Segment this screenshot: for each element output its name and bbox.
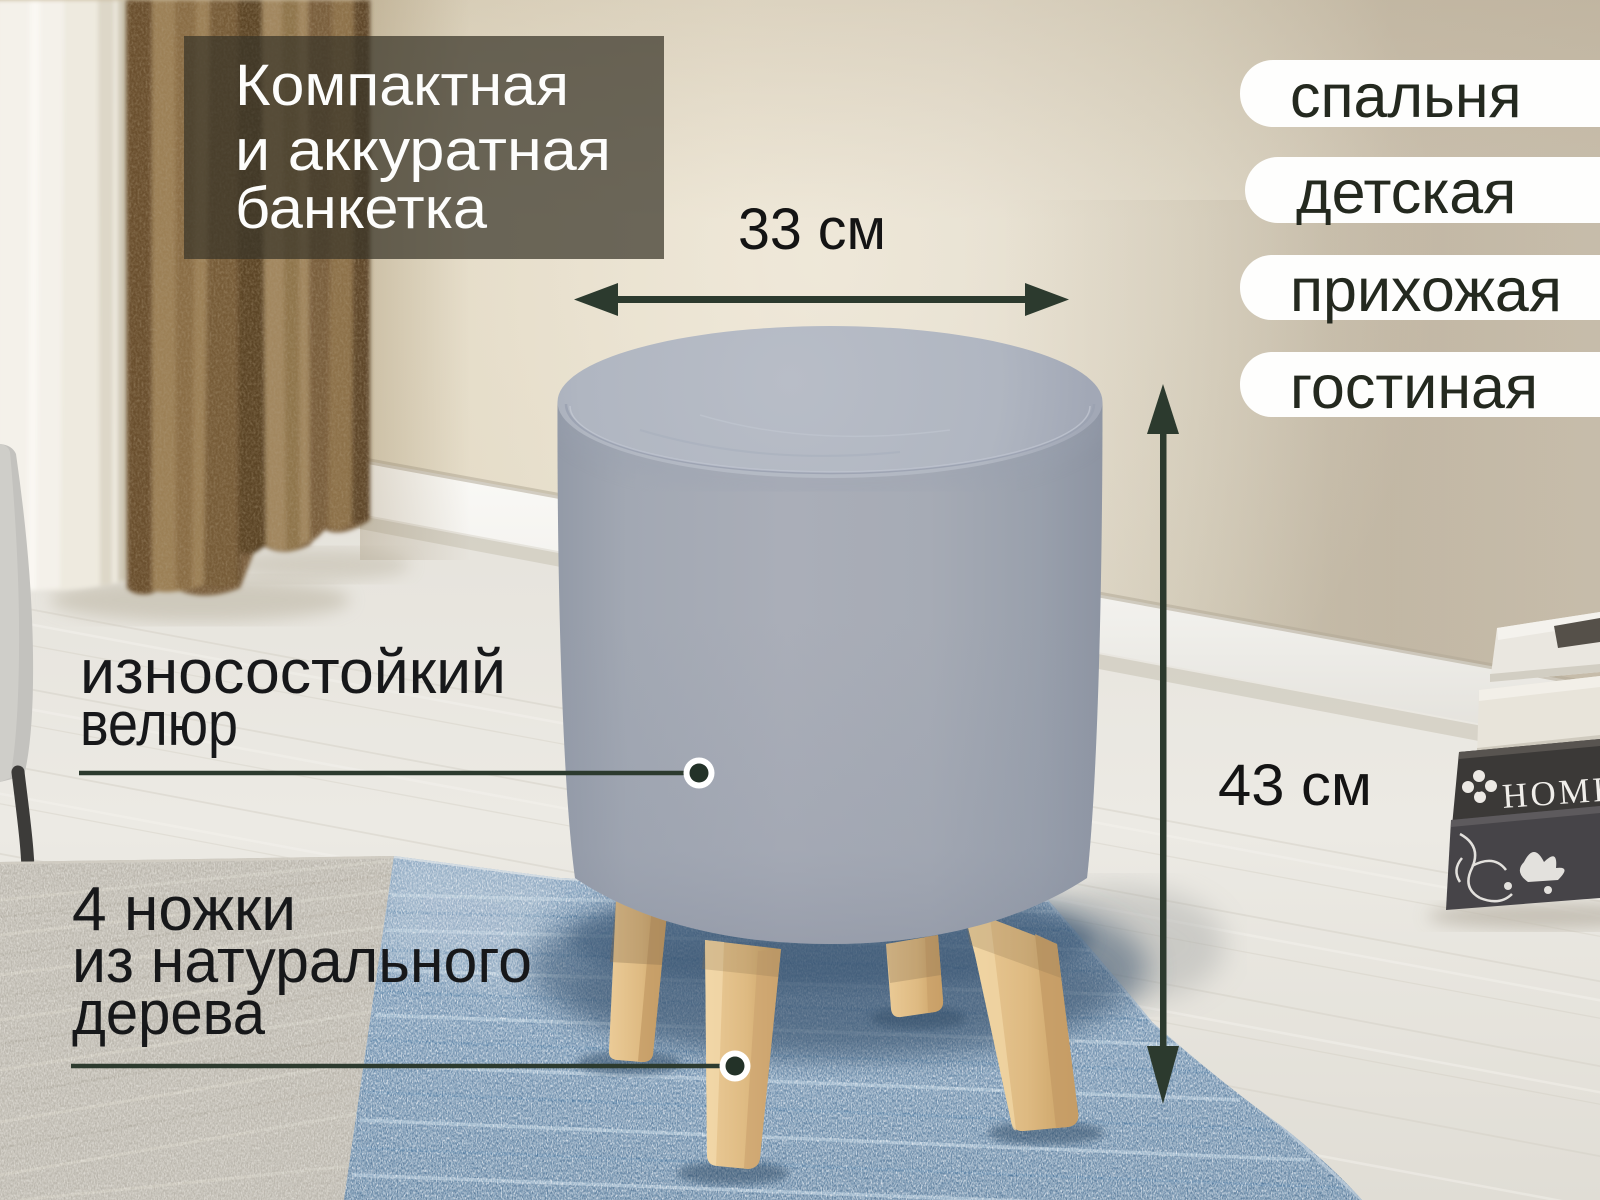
svg-text:33 см: 33 см xyxy=(738,197,886,262)
svg-text:и аккуратная: и аккуратная xyxy=(235,118,611,183)
svg-text:спальня: спальня xyxy=(1290,62,1522,130)
svg-text:детская: детская xyxy=(1296,158,1516,226)
svg-text:банкетка: банкетка xyxy=(235,176,488,241)
svg-text:прихожая: прихожая xyxy=(1290,256,1562,324)
svg-text:велюр: велюр xyxy=(80,690,238,759)
svg-text:43 см: 43 см xyxy=(1218,753,1372,818)
svg-text:гостиная: гостиная xyxy=(1290,353,1538,421)
svg-text:дерева: дерева xyxy=(72,979,265,1048)
svg-text:Компактная: Компактная xyxy=(235,53,569,118)
